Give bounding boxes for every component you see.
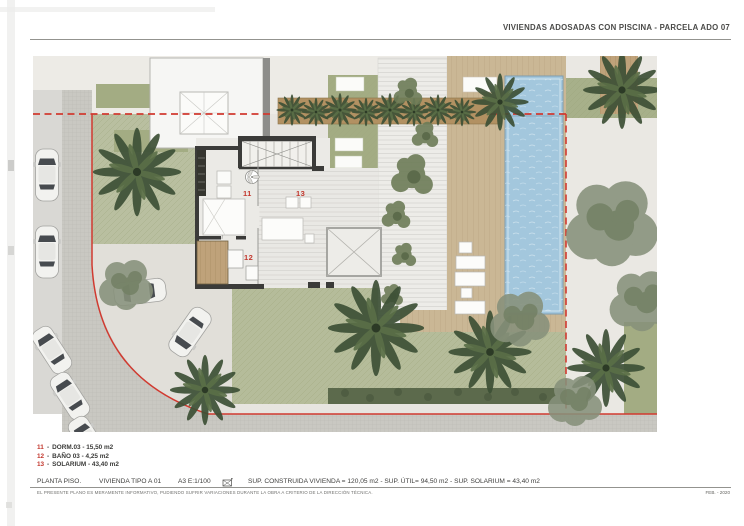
date: FEB. - 2020 bbox=[705, 490, 730, 495]
tree bbox=[490, 292, 549, 347]
areas-summary: SUP. CONSTRUIDA VIVIENDA = 120,05 m2 - S… bbox=[248, 478, 540, 485]
plan-sheet: VIVIENDAS ADOSADAS CON PISCINA - PARCELA… bbox=[0, 0, 744, 526]
pergola-skylight bbox=[327, 228, 381, 276]
legend-number: 11 bbox=[37, 444, 47, 451]
room-label-solarium: 13 bbox=[296, 189, 305, 198]
plan-name: PLANTA PISO. bbox=[37, 478, 81, 485]
parked-car bbox=[33, 226, 61, 278]
room-label-bathroom: 12 bbox=[244, 253, 253, 262]
nightstand bbox=[217, 186, 231, 198]
nightstand bbox=[217, 171, 231, 184]
disclaimer: EL PRESENTE PLANO ES MERAMENTE INFORMATI… bbox=[37, 490, 373, 495]
legend-label: DORM.03 - 15,50 m2 bbox=[52, 444, 113, 451]
legend-label: BAÑO 03 - 4,25 m2 bbox=[52, 453, 109, 460]
bush bbox=[99, 260, 153, 310]
legend: 11 - DORM.03 - 15,50 m2 12 - BAÑO 03 - 4… bbox=[37, 443, 119, 469]
legend-number: 12 bbox=[37, 453, 47, 460]
legend-item-dorm: 11 - DORM.03 - 15,50 m2 bbox=[37, 443, 119, 452]
scale-label: A3 E:1/100 bbox=[178, 478, 211, 485]
room-label-bedroom: 11 bbox=[243, 189, 252, 198]
wardrobe bbox=[197, 150, 206, 196]
neighbor-roof-edge bbox=[263, 58, 270, 148]
footer-rule bbox=[30, 487, 731, 488]
tree bbox=[548, 376, 602, 426]
neighbor-skylight bbox=[180, 92, 228, 134]
parked-car bbox=[33, 149, 61, 201]
tree bbox=[566, 181, 658, 266]
legend-item-bano: 12 - BAÑO 03 - 4,25 m2 bbox=[37, 452, 119, 461]
legend-label: SOLARIUM - 43,40 m2 bbox=[52, 461, 119, 468]
shower bbox=[197, 241, 228, 284]
tree bbox=[610, 271, 675, 331]
sink bbox=[228, 250, 243, 268]
legend-item-solarium: 13 - SOLARIUM - 43,40 m2 bbox=[37, 461, 119, 470]
dwelling-type: VIVIENDA TIPO A 01 bbox=[99, 478, 161, 485]
hedge bbox=[328, 388, 566, 404]
toilet bbox=[246, 266, 258, 280]
legend-number: 13 bbox=[37, 461, 47, 468]
bed bbox=[203, 199, 245, 235]
staircase bbox=[240, 140, 314, 168]
